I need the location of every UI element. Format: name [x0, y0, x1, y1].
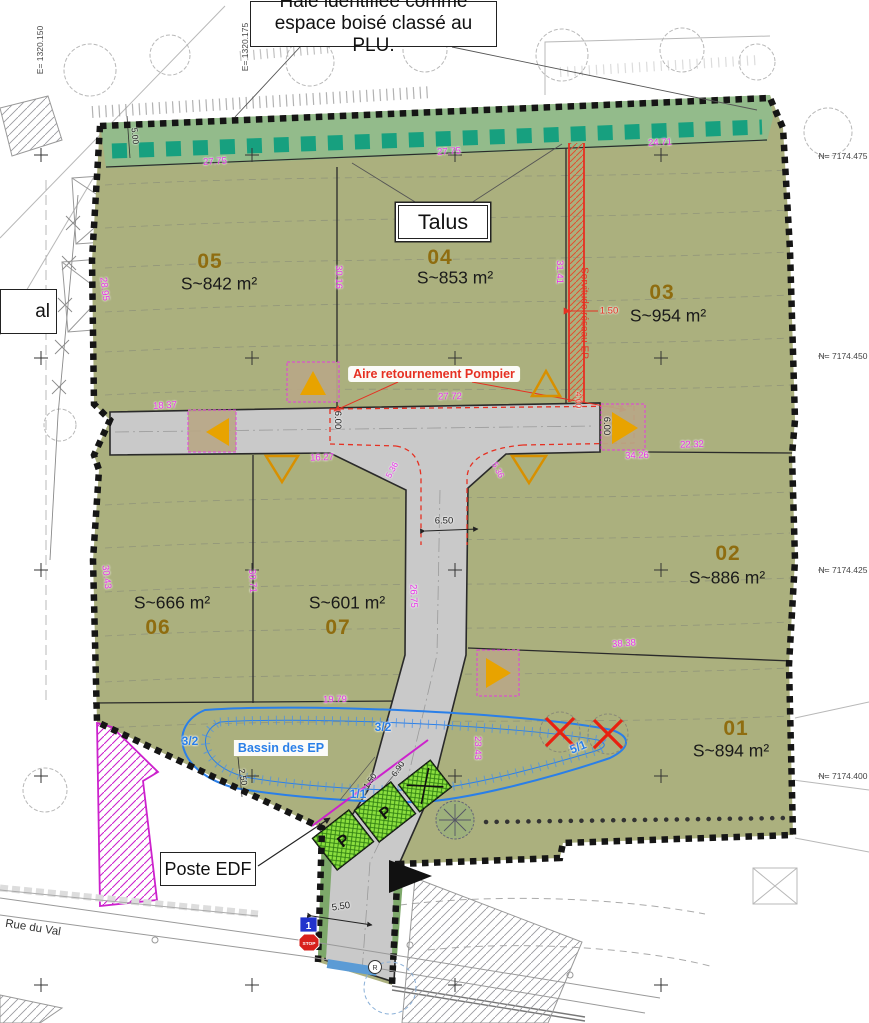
- bassin-label: Bassin des EP: [234, 740, 328, 756]
- poste-edf-callout: Poste EDF: [160, 852, 256, 886]
- tree-symbol: [436, 801, 474, 839]
- dimension-label: 31.41: [554, 260, 564, 284]
- marker-square: [188, 410, 236, 452]
- talus-hachures: [92, 92, 432, 112]
- fence-line: [50, 195, 80, 560]
- plot-number: 01: [723, 717, 748, 741]
- dimension-label: 34.26: [625, 451, 649, 461]
- site-plan: P P: [0, 0, 869, 1023]
- dimension-label: 27.75: [203, 157, 227, 168]
- grid-coordinate-north: N= 7174.400: [819, 772, 868, 781]
- fire-turnaround-label: Aire retournement Pompier: [348, 366, 520, 382]
- building-hatched: [0, 995, 62, 1023]
- dimension-label: 30.16: [333, 265, 343, 289]
- dimension-label: 38.38: [612, 638, 636, 649]
- plot-area: S~954 m²: [630, 306, 706, 327]
- dimension-label: 27.75: [437, 147, 461, 158]
- edf-strip: [97, 723, 158, 906]
- dimension-label: 6.00: [601, 417, 611, 436]
- dimension-label: 18.37: [153, 401, 177, 412]
- grid-coordinate-north: N= 7174.450: [819, 352, 868, 361]
- dimension-label: 28.95: [98, 277, 110, 302]
- dimension-label: 6.00: [332, 411, 342, 430]
- plot-number: 06: [145, 616, 170, 640]
- haie-callout: Haie identifiée comme espace boisé class…: [250, 1, 497, 47]
- servitude-label: Servitude réseau EP: [579, 267, 590, 359]
- dimension-label: 1.50: [600, 306, 619, 316]
- plot-area: S~666 m²: [134, 593, 210, 614]
- grid-coordinate-east: E= 1320.150: [36, 26, 45, 74]
- truncated-label: al: [0, 289, 57, 334]
- slope-label: 1/1: [350, 788, 367, 800]
- dimension-label: 24.71: [648, 138, 672, 149]
- plan-drawing: P P: [0, 0, 869, 1023]
- building-hatched: [402, 878, 582, 1023]
- dimension-label: 30.43: [100, 565, 112, 590]
- dimension-label: 26.75: [408, 584, 418, 608]
- lot-number-text: 1: [306, 921, 312, 932]
- plot-number: 02: [715, 542, 740, 566]
- plot-area: S~601 m²: [309, 593, 385, 614]
- marker-square: [477, 650, 519, 696]
- dimension-label: 30.71: [247, 569, 258, 593]
- marker-square: [287, 362, 339, 402]
- grid-coordinate-north: N= 7174.425: [819, 566, 868, 575]
- manhole-symbol: R: [369, 961, 382, 974]
- plot-area: S~853 m²: [417, 268, 493, 289]
- talus-callout: Talus: [398, 205, 488, 239]
- grid-coordinate-east: E= 1320.175: [241, 23, 250, 71]
- plot-area: S~894 m²: [693, 741, 769, 762]
- dimension-label: 23.43: [472, 736, 482, 760]
- dimension-label: 19.79: [323, 695, 347, 705]
- dimension-label: 4.00: [574, 392, 583, 409]
- dimension-label: 6.50: [435, 516, 454, 526]
- dimension-label: 22.32: [680, 440, 704, 450]
- plot-number: 04: [427, 246, 452, 270]
- plot-number: 05: [197, 250, 222, 274]
- dimension-label: 27.72: [438, 392, 462, 402]
- plot-number: 07: [325, 616, 350, 640]
- slope-label: 3/2: [375, 721, 392, 733]
- plot-area: S~842 m²: [181, 274, 257, 295]
- stop-text: STOP: [303, 941, 317, 947]
- grid-coordinate-north: N= 7174.475: [819, 152, 868, 161]
- dimension-label: 16.27: [310, 453, 334, 463]
- manhole-text: R: [372, 965, 377, 972]
- slope-label: 3/2: [182, 735, 199, 747]
- plot-number: 03: [649, 281, 674, 305]
- plot-area: S~886 m²: [689, 568, 765, 589]
- dimension-label: 2.50: [237, 768, 248, 786]
- dimension-label: 5.00: [130, 127, 140, 144]
